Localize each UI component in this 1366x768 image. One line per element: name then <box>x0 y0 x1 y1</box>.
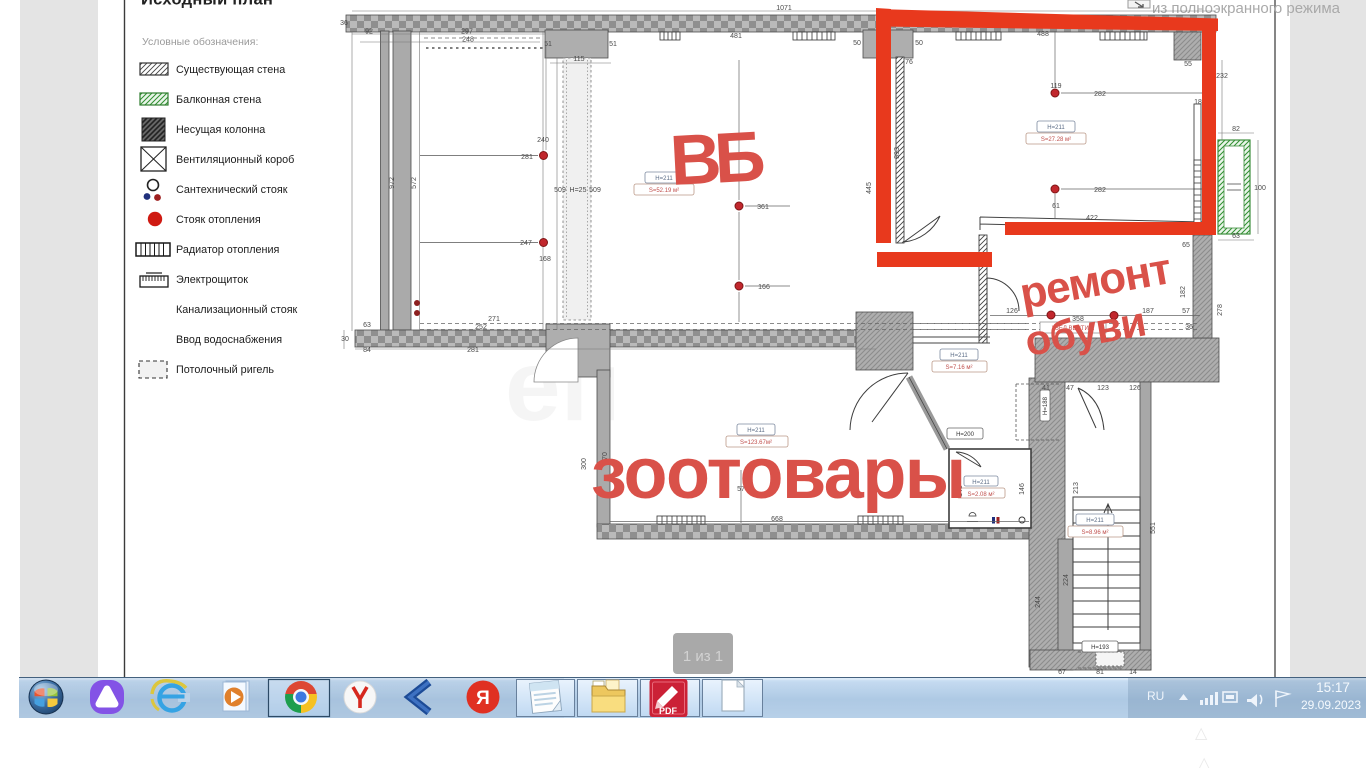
svg-text:47: 47 <box>1066 385 1074 392</box>
svg-text:100: 100 <box>1254 185 1266 192</box>
svg-text:S=7.16 м²: S=7.16 м² <box>946 365 973 371</box>
svg-text:H=188: H=188 <box>1043 396 1049 415</box>
svg-text:Несущая колонна: Несущая колонна <box>176 124 265 136</box>
svg-text:△: △ <box>1195 725 1208 742</box>
svg-text:Потолочный ригель: Потолочный ригель <box>176 364 274 376</box>
svg-text:Ввод водоснабжения: Ввод водоснабжения <box>176 334 282 346</box>
svg-text:115: 115 <box>573 56 584 63</box>
svg-text:14: 14 <box>1129 669 1137 676</box>
svg-text:H=25: H=25 <box>570 187 587 194</box>
svg-text:Сантехнический стояк: Сантехнический стояк <box>176 184 288 196</box>
svg-text:76: 76 <box>905 59 913 66</box>
svg-text:Канализационный стояк: Канализационный стояк <box>176 304 298 316</box>
svg-text:244: 244 <box>1035 596 1042 608</box>
svg-text:Радиатор отопления: Радиатор отопления <box>176 244 280 256</box>
svg-text:84: 84 <box>363 347 371 354</box>
svg-text:126: 126 <box>1129 385 1141 392</box>
svg-text:445: 445 <box>866 182 873 194</box>
svg-text:PDF: PDF <box>659 706 678 716</box>
svg-text:509: 509 <box>589 187 601 194</box>
svg-text:H=211: H=211 <box>972 480 990 486</box>
svg-text:Стояк отопления: Стояк отопления <box>176 214 261 226</box>
svg-text:232: 232 <box>1216 73 1228 80</box>
svg-text:92: 92 <box>365 29 373 36</box>
svg-text:297: 297 <box>461 29 473 36</box>
svg-text:271: 271 <box>488 316 500 323</box>
svg-text:481: 481 <box>730 33 742 40</box>
svg-text:Вентиляционный короб: Вентиляционный короб <box>176 154 294 166</box>
svg-text:18: 18 <box>1194 99 1202 106</box>
svg-text:ВБ: ВБ <box>668 117 765 201</box>
svg-text:Существующая стена: Существующая стена <box>176 64 285 76</box>
svg-text:509: 509 <box>554 187 566 194</box>
svg-text:166: 166 <box>758 284 770 291</box>
svg-text:422: 422 <box>1086 215 1098 222</box>
svg-text:из полноэкранного режима: из полноэкранного режима <box>1152 0 1341 17</box>
svg-text:Исходный план: Исходный план <box>141 0 273 9</box>
svg-text:63: 63 <box>1232 233 1240 240</box>
svg-text:50: 50 <box>853 40 861 47</box>
svg-text:182: 182 <box>1180 286 1187 298</box>
svg-text:252: 252 <box>475 324 487 331</box>
svg-text:Условные обозначения:: Условные обозначения: <box>142 36 258 48</box>
svg-text:зоотовары: зоотовары <box>591 434 965 514</box>
svg-text:488: 488 <box>1037 31 1049 38</box>
svg-text:281: 281 <box>467 347 479 354</box>
svg-text:36: 36 <box>1185 324 1193 331</box>
svg-text:50: 50 <box>915 40 923 47</box>
svg-text:187: 187 <box>1142 308 1154 315</box>
svg-text:668: 668 <box>771 516 783 523</box>
svg-text:278: 278 <box>1217 304 1224 316</box>
svg-text:S=8.96 м²: S=8.96 м² <box>1082 530 1109 536</box>
svg-text:H=211: H=211 <box>1047 125 1065 131</box>
svg-text:29.09.2023: 29.09.2023 <box>1301 698 1361 712</box>
svg-text:361: 361 <box>757 204 769 211</box>
svg-text:972: 972 <box>389 177 396 189</box>
svg-text:146: 146 <box>1019 483 1026 495</box>
svg-text:572: 572 <box>411 177 418 189</box>
svg-text:H=211: H=211 <box>950 353 968 359</box>
svg-text:82: 82 <box>1232 126 1240 133</box>
svg-text:1071: 1071 <box>776 5 792 12</box>
svg-text:S=27.28 м²: S=27.28 м² <box>1041 137 1071 143</box>
svg-text:248: 248 <box>462 37 474 44</box>
svg-text:36: 36 <box>340 20 348 27</box>
svg-text:51: 51 <box>544 41 552 48</box>
svg-text:41: 41 <box>1042 385 1050 392</box>
svg-text:282: 282 <box>1094 187 1106 194</box>
svg-text:Электрощиток: Электрощиток <box>176 274 248 286</box>
svg-text:551: 551 <box>1150 522 1157 534</box>
svg-text:51: 51 <box>609 41 617 48</box>
svg-text:119: 119 <box>1050 83 1061 90</box>
svg-text:RU: RU <box>1147 689 1164 703</box>
svg-text:123: 123 <box>1097 385 1109 392</box>
svg-text:168: 168 <box>539 256 551 263</box>
svg-text:H=193: H=193 <box>1091 645 1110 651</box>
svg-text:282: 282 <box>1094 91 1106 98</box>
svg-text:57: 57 <box>1182 308 1190 315</box>
svg-text:55: 55 <box>1184 61 1192 68</box>
svg-text:30: 30 <box>341 336 349 343</box>
svg-text:H=211: H=211 <box>1086 518 1104 524</box>
svg-text:247: 247 <box>520 240 532 247</box>
svg-text:65: 65 <box>1182 242 1190 249</box>
svg-text:240: 240 <box>537 137 549 144</box>
svg-text:224: 224 <box>1063 574 1070 586</box>
svg-text:67: 67 <box>1058 669 1066 676</box>
svg-text:213: 213 <box>1073 482 1080 494</box>
svg-text:393: 393 <box>894 147 901 159</box>
svg-text:61: 61 <box>1052 203 1060 210</box>
svg-text:126: 126 <box>1006 308 1018 315</box>
svg-text:81: 81 <box>1096 669 1104 676</box>
svg-text:S=2.08 м²: S=2.08 м² <box>968 492 995 498</box>
svg-text:1 из 1: 1 из 1 <box>683 648 723 665</box>
svg-text:281: 281 <box>521 154 533 161</box>
svg-text:300: 300 <box>581 458 588 470</box>
svg-text:Я: Я <box>476 688 490 709</box>
svg-text:15:17: 15:17 <box>1316 680 1350 695</box>
svg-text:63: 63 <box>363 322 371 329</box>
svg-text:Балконная стена: Балконная стена <box>176 94 261 106</box>
svg-text:△: △ <box>1198 755 1211 768</box>
